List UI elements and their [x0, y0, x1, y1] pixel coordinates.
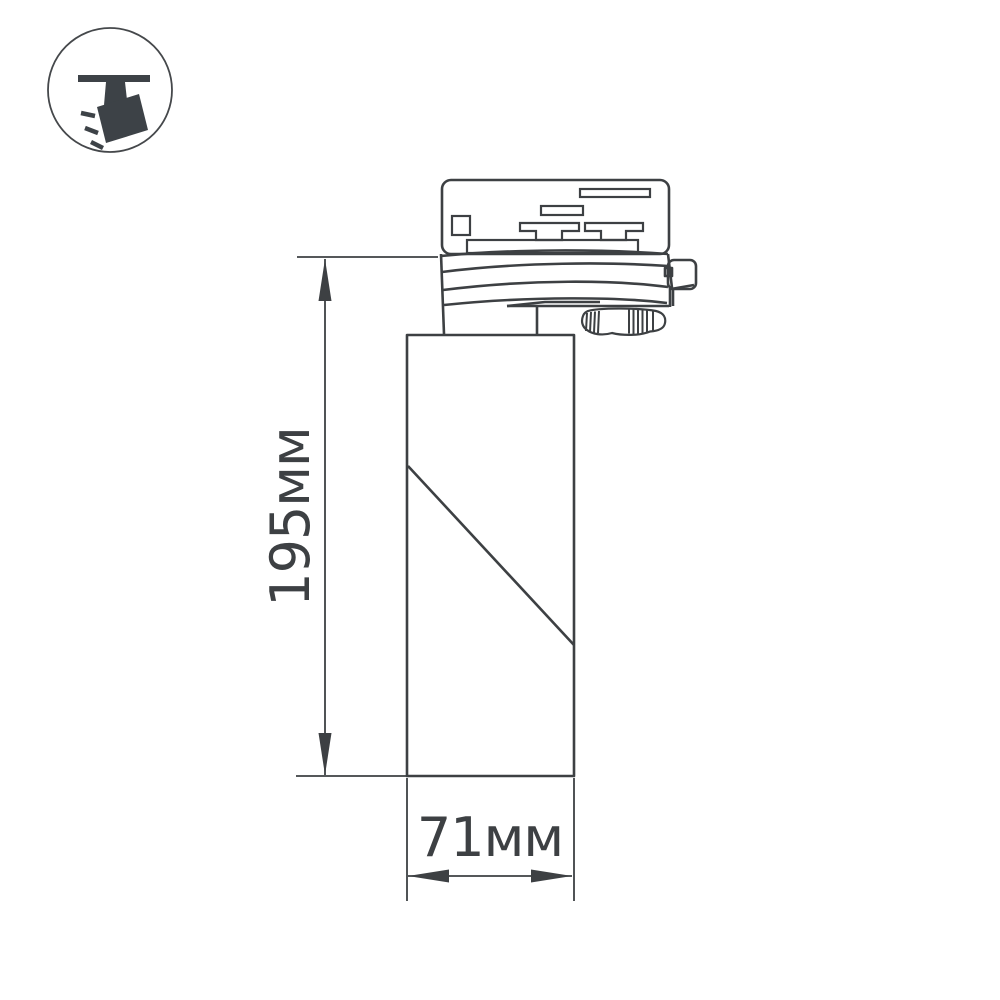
arrow-left-icon	[408, 870, 449, 883]
arrow-down-icon	[319, 733, 332, 775]
track-bar-icon	[78, 75, 150, 82]
width-dimension-label: 71мм	[417, 806, 563, 869]
arrow-up-icon	[319, 259, 332, 301]
arrow-right-icon	[531, 870, 572, 883]
product-dimension-drawing: 195мм 71мм	[0, 0, 1000, 1000]
drawing-canvas: 195мм 71мм	[0, 0, 1000, 1000]
height-dimension-label: 195мм	[259, 427, 322, 607]
knob-bracket	[507, 302, 669, 334]
light-rays-icon	[81, 113, 103, 148]
lamp-body	[407, 335, 574, 776]
adapter-contacts	[452, 189, 650, 253]
adjustment-knob	[582, 309, 665, 335]
body-seam-line	[408, 466, 574, 645]
knob-ribs-right	[629, 310, 653, 335]
fixture-drawing	[407, 180, 696, 776]
track-adapter-housing	[442, 180, 669, 254]
track-light-icon	[48, 28, 172, 152]
width-dimension: 71мм	[407, 778, 574, 901]
